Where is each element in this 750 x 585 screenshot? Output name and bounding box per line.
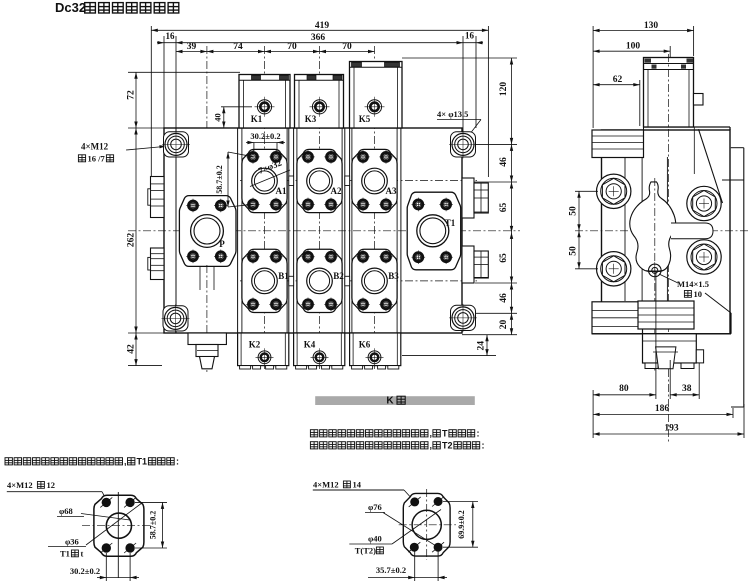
svg-text:K3: K3 bbox=[305, 114, 317, 124]
svg-text:4×M12: 4×M12 bbox=[313, 480, 339, 490]
svg-text:10: 10 bbox=[694, 289, 703, 299]
svg-text:366: 366 bbox=[311, 33, 326, 43]
svg-text:186: 186 bbox=[655, 404, 670, 414]
svg-text:70: 70 bbox=[342, 42, 352, 52]
svg-text:4×M12: 4×M12 bbox=[7, 480, 33, 490]
svg-text:A1: A1 bbox=[276, 186, 287, 196]
svg-text:58.7±0.2: 58.7±0.2 bbox=[215, 165, 224, 193]
svg-text:40: 40 bbox=[213, 113, 223, 122]
svg-text:120: 120 bbox=[499, 82, 509, 97]
svg-text:39: 39 bbox=[187, 42, 197, 52]
svg-text:130: 130 bbox=[644, 21, 659, 31]
svg-text:P: P bbox=[219, 239, 225, 249]
svg-text:t: t bbox=[81, 549, 84, 559]
svg-text:T2: T2 bbox=[442, 441, 453, 451]
svg-text:20: 20 bbox=[499, 320, 509, 330]
svg-text:38: 38 bbox=[682, 384, 692, 394]
svg-text:16: 16 bbox=[166, 31, 176, 41]
svg-text:58.7±0.2: 58.7±0.2 bbox=[149, 511, 158, 539]
svg-text:100: 100 bbox=[626, 42, 641, 52]
svg-text:K: K bbox=[386, 396, 394, 407]
svg-text:φ36: φ36 bbox=[65, 537, 79, 547]
svg-text:419: 419 bbox=[315, 21, 330, 31]
svg-text:4×M12: 4×M12 bbox=[81, 142, 109, 152]
svg-text:T1: T1 bbox=[60, 549, 70, 559]
svg-text:30.2±0.2: 30.2±0.2 bbox=[250, 131, 280, 141]
svg-text:24: 24 bbox=[477, 341, 487, 351]
svg-text:T1: T1 bbox=[445, 218, 456, 228]
svg-text:,: , bbox=[124, 457, 127, 467]
svg-text:62: 62 bbox=[613, 75, 623, 85]
svg-text:B3: B3 bbox=[388, 271, 399, 281]
svg-text:65: 65 bbox=[499, 253, 509, 263]
svg-text:12: 12 bbox=[47, 480, 56, 490]
svg-text:4× φ13.5: 4× φ13.5 bbox=[437, 109, 468, 119]
svg-text:T: T bbox=[442, 429, 448, 439]
svg-text:,: , bbox=[430, 441, 433, 451]
svg-text:T1: T1 bbox=[137, 457, 148, 467]
svg-text:A2: A2 bbox=[331, 186, 342, 196]
svg-text:46: 46 bbox=[499, 157, 509, 167]
svg-text:35.7±0.2: 35.7±0.2 bbox=[376, 565, 406, 575]
svg-text:74: 74 bbox=[233, 42, 243, 52]
svg-text:B2: B2 bbox=[333, 271, 344, 281]
svg-text:K6: K6 bbox=[359, 340, 371, 350]
svg-text:193: 193 bbox=[664, 424, 679, 434]
svg-text:70: 70 bbox=[287, 42, 297, 52]
svg-text:φ76: φ76 bbox=[368, 502, 382, 512]
svg-text:72: 72 bbox=[127, 90, 137, 100]
svg-text:16: 16 bbox=[465, 31, 475, 41]
svg-text:K1: K1 bbox=[251, 114, 263, 124]
svg-text:Dc32: Dc32 bbox=[55, 0, 86, 15]
svg-text:φ68: φ68 bbox=[59, 506, 73, 516]
svg-text:M14×1.5: M14×1.5 bbox=[677, 279, 709, 289]
svg-text:262: 262 bbox=[127, 233, 137, 248]
svg-text:42: 42 bbox=[127, 344, 137, 354]
svg-text::: : bbox=[482, 441, 485, 451]
svg-text:65: 65 bbox=[499, 203, 509, 213]
svg-text::: : bbox=[477, 429, 480, 439]
svg-text:16 /7: 16 /7 bbox=[88, 154, 106, 164]
svg-text:φ40: φ40 bbox=[368, 534, 382, 544]
svg-text:K5: K5 bbox=[359, 114, 371, 124]
svg-text:,: , bbox=[430, 429, 433, 439]
svg-text:A3: A3 bbox=[386, 186, 397, 196]
svg-text:30.2±0.2: 30.2±0.2 bbox=[70, 566, 100, 576]
svg-text::: : bbox=[176, 457, 179, 467]
svg-text:B1: B1 bbox=[278, 271, 289, 281]
svg-text:K4: K4 bbox=[304, 340, 316, 350]
svg-text:14: 14 bbox=[353, 480, 362, 490]
svg-text:T(T2): T(T2) bbox=[355, 546, 376, 556]
svg-text:80: 80 bbox=[619, 384, 629, 394]
svg-text:50: 50 bbox=[569, 206, 579, 216]
svg-text:50: 50 bbox=[569, 246, 579, 256]
svg-text:K2: K2 bbox=[249, 340, 261, 350]
svg-text:69.9±0.2: 69.9±0.2 bbox=[457, 510, 466, 538]
svg-text:46: 46 bbox=[499, 293, 509, 303]
